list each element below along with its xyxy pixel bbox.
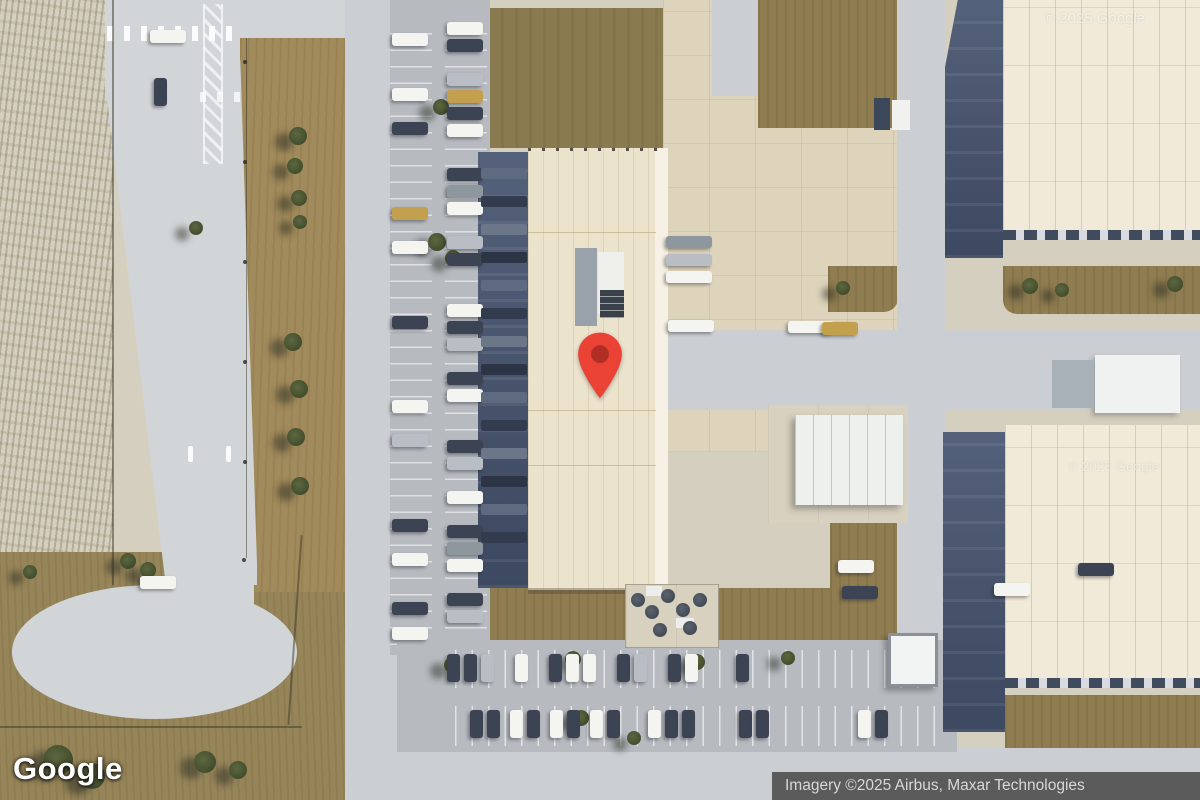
- parked-car: [487, 710, 500, 738]
- dock-trailer: [481, 196, 527, 207]
- tree: [1022, 278, 1038, 294]
- tree: [189, 221, 203, 235]
- loading-dock-ne: [945, 0, 1003, 258]
- parked-car: [392, 519, 428, 532]
- parked-car: [875, 710, 888, 738]
- service-road-north: [712, 0, 758, 96]
- parked-car: [447, 22, 483, 35]
- fence-median: [246, 38, 247, 558]
- dock-trailer: [481, 392, 527, 403]
- parked-car: [392, 316, 428, 329]
- parked-car: [392, 207, 428, 220]
- tree: [290, 380, 308, 398]
- parked-car: [464, 654, 477, 682]
- attribution-text: Imagery ©2025 Airbus, Maxar Technologies: [785, 777, 1085, 794]
- parked-car: [756, 710, 769, 738]
- parked-car: [447, 202, 483, 215]
- parked-car: [392, 434, 428, 447]
- utility-pole: [243, 260, 247, 264]
- painted-median-hatch: [203, 4, 223, 164]
- parked-car: [447, 124, 483, 137]
- parked-car: [447, 440, 483, 453]
- parked-car: [392, 88, 428, 101]
- parked-car: [527, 710, 540, 738]
- utility-pole: [243, 160, 247, 164]
- parked-car: [566, 654, 579, 682]
- parked-car: [665, 710, 678, 738]
- parked-car: [842, 586, 878, 599]
- parked-car: [447, 559, 483, 572]
- dock-trailer: [481, 336, 527, 347]
- parked-car: [447, 73, 483, 86]
- tree: [229, 761, 247, 779]
- tree: [291, 190, 307, 206]
- tree: [289, 127, 307, 145]
- parked-car: [447, 372, 483, 385]
- satellite-map-canvas[interactable]: © 2025 Google © 2025 Google Google Image…: [0, 0, 1200, 800]
- tree: [293, 215, 307, 229]
- parked-car: [447, 610, 483, 623]
- parked-car: [447, 491, 483, 504]
- dock-trailer: [481, 168, 527, 179]
- warehouse-ne-roof: [1003, 0, 1200, 240]
- parked-car: [739, 710, 752, 738]
- turnaround-neck: [166, 558, 254, 618]
- loading-dock-se: [943, 432, 1005, 732]
- parked-car: [447, 304, 483, 317]
- turnaround-bulb: [12, 585, 297, 719]
- dock-trailer: [481, 280, 527, 291]
- parked-car: [447, 90, 483, 103]
- dock-trailer: [481, 476, 527, 487]
- parked-car: [447, 253, 483, 266]
- parked-car: [668, 654, 681, 682]
- parked-car: [549, 654, 562, 682]
- tree: [836, 281, 850, 295]
- dock-trailer: [481, 532, 527, 543]
- main-warehouse-roof-seam-2: [528, 410, 656, 411]
- main-road-mid-segment: [105, 60, 257, 585]
- parked-car: [470, 710, 483, 738]
- parked-car: [392, 627, 428, 640]
- parked-car: [607, 710, 620, 738]
- parked-car: [685, 654, 698, 682]
- dock-trailer: [481, 364, 527, 375]
- storage-tank: [683, 621, 697, 635]
- tree: [781, 651, 795, 665]
- parked-car: [392, 602, 428, 615]
- dock-trailer: [481, 420, 527, 431]
- google-logo[interactable]: Google: [13, 751, 123, 787]
- parked-car: [392, 33, 428, 46]
- main-warehouse-roof-seam-3: [528, 465, 656, 466]
- parked-car: [634, 654, 647, 682]
- parked-car: [447, 185, 483, 198]
- utility-pole: [243, 60, 247, 64]
- parked-car: [447, 389, 483, 402]
- tank-yard-shed-1: [646, 586, 662, 596]
- storage-tank: [676, 603, 690, 617]
- tree: [1055, 283, 1069, 297]
- parked-car: [1078, 563, 1114, 576]
- guard-booth-white: [892, 100, 910, 130]
- small-building-white: [888, 633, 938, 687]
- map-pin-inner-circle: [591, 345, 609, 363]
- storage-tank: [653, 623, 667, 637]
- parked-car: [838, 560, 874, 573]
- rooftop-hvac-gray: [575, 248, 597, 326]
- parked-car: [447, 321, 483, 334]
- parked-car: [822, 322, 858, 335]
- rooftop-unit-white-east: [1095, 355, 1180, 413]
- parked-car: [447, 236, 483, 249]
- parked-car: [858, 710, 871, 738]
- tree: [284, 333, 302, 351]
- parked-car: [447, 593, 483, 606]
- parked-car: [447, 525, 483, 538]
- parked-car: [682, 710, 695, 738]
- fence-field-edge: [112, 0, 114, 585]
- dock-trailer: [481, 224, 527, 235]
- parked-car: [447, 107, 483, 120]
- utility-pole: [243, 460, 247, 464]
- utility-pole: [243, 360, 247, 364]
- parked-car: [447, 542, 483, 555]
- main-warehouse-roof-edge: [528, 148, 668, 151]
- parked-car: [447, 457, 483, 470]
- storage-tank: [645, 605, 659, 619]
- map-pin-body[interactable]: [578, 333, 622, 399]
- parked-car: [447, 168, 483, 181]
- truck-trailer: [666, 271, 712, 283]
- rooftop-solar-grid: [600, 290, 624, 318]
- parked-car: [447, 654, 460, 682]
- parked-car: [392, 241, 428, 254]
- utility-pole: [242, 558, 246, 562]
- google-watermark-top: © 2025 Google: [1044, 10, 1145, 27]
- dock-trailer: [481, 504, 527, 515]
- utility-plant-white: [795, 415, 903, 505]
- dock-trailer: [481, 308, 527, 319]
- map-pin-icon[interactable]: [575, 330, 625, 402]
- attribution-bar: Imagery ©2025 Airbus, Maxar Technologies: [772, 772, 1200, 800]
- grass-strip-se: [1005, 695, 1200, 753]
- tree: [627, 731, 641, 745]
- parked-car: [583, 654, 596, 682]
- guard-booth-dark: [874, 98, 890, 130]
- storage-tank: [661, 589, 675, 603]
- lane-arrow-right: [226, 446, 231, 462]
- parked-car: [140, 576, 176, 589]
- parked-car: [994, 583, 1030, 596]
- parked-car: [736, 654, 749, 682]
- parked-car: [481, 654, 494, 682]
- parked-car: [447, 338, 483, 351]
- tree: [120, 553, 136, 569]
- fence-turnaround-south: [0, 726, 302, 728]
- tree: [291, 477, 309, 495]
- grass-median-strip: [240, 36, 346, 592]
- parked-car: [510, 710, 523, 738]
- warehouse-ne-dock-doors: [1003, 230, 1200, 240]
- main-warehouse-roof-seam-1: [528, 232, 656, 233]
- tree: [23, 565, 37, 579]
- parked-car: [392, 553, 428, 566]
- dock-trailer: [481, 448, 527, 459]
- parked-car: [567, 710, 580, 738]
- parked-car: [392, 122, 428, 135]
- parked-car: [515, 654, 528, 682]
- tree: [194, 751, 216, 773]
- rooftop-unit-gray-east: [1052, 360, 1094, 408]
- dock-trailer: [481, 252, 527, 263]
- parked-car: [590, 710, 603, 738]
- truck-trailer: [668, 320, 714, 332]
- parked-car: [648, 710, 661, 738]
- lane-arrow-left: [188, 446, 193, 462]
- google-watermark-center: © 2025 Google: [1068, 459, 1159, 474]
- parked-car: [617, 654, 630, 682]
- storage-tank: [631, 593, 645, 607]
- tree: [428, 233, 446, 251]
- storage-tank: [693, 593, 707, 607]
- parked-car: [550, 710, 563, 738]
- tree: [287, 428, 305, 446]
- parked-car: [392, 400, 428, 413]
- parked-car: [447, 39, 483, 52]
- truck-trailer: [666, 254, 712, 266]
- tree: [287, 158, 303, 174]
- parked-car: [154, 78, 167, 106]
- parked-car: [150, 30, 186, 43]
- warehouse-se-dock-doors: [1005, 678, 1200, 688]
- truck-trailer: [666, 236, 712, 248]
- main-warehouse-parapet-east: [655, 148, 668, 590]
- parking-stalls-west-col1: [390, 18, 432, 646]
- tree: [1167, 276, 1183, 292]
